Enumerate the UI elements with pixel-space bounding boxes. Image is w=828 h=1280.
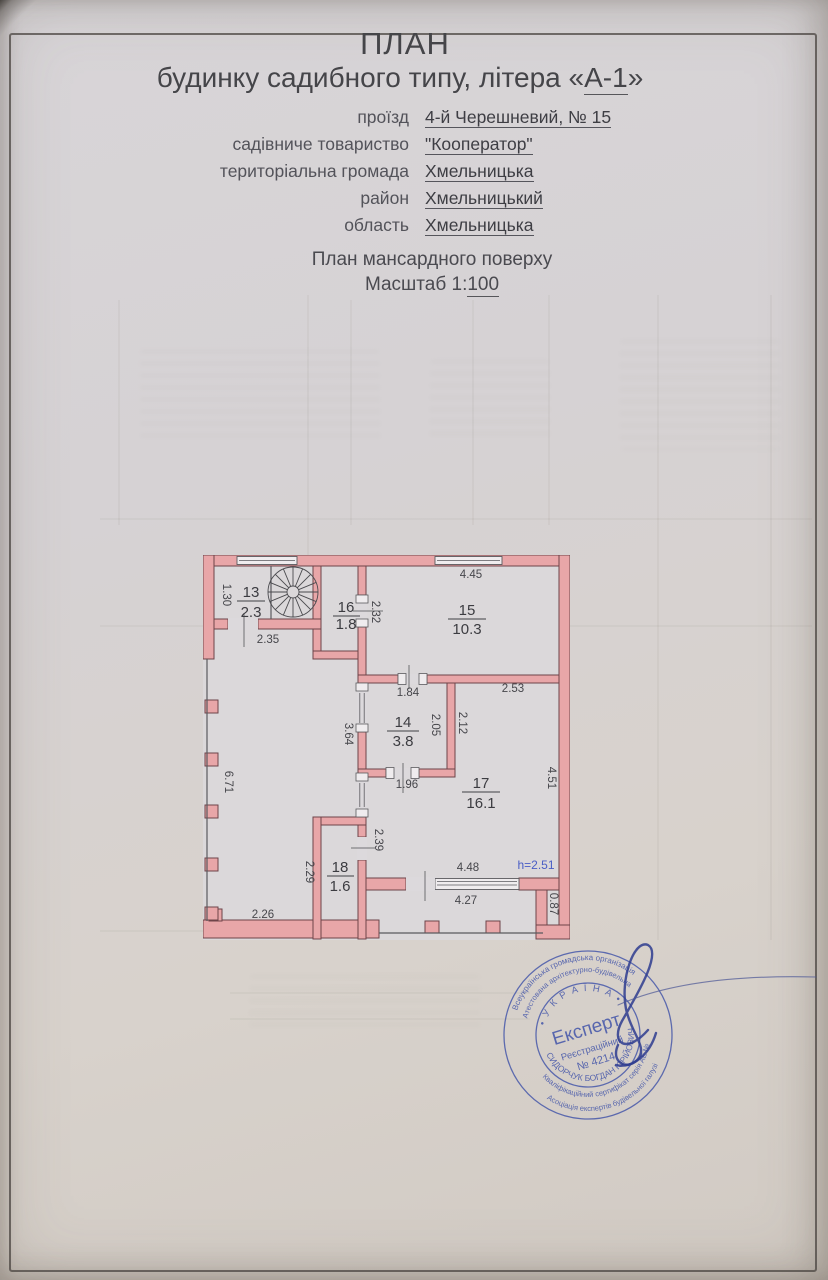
page-title: ПЛАН: [0, 26, 810, 62]
dim-room17-right: 4.51: [545, 767, 557, 789]
svg-text:2.3: 2.3: [241, 604, 262, 621]
address-value: Хмельницький: [409, 185, 704, 212]
svg-text:15: 15: [459, 602, 476, 619]
plan-caption: План мансардного поверху Масштаб 1:100: [52, 247, 812, 297]
address-row: проїзд 4-й Черешневий, № 15: [118, 104, 704, 131]
svg-text:18: 18: [332, 859, 349, 876]
dim-room18-left: 2.29: [303, 861, 315, 883]
dim-room14-inner-right: 2.05: [429, 714, 441, 736]
svg-text:10.3: 10.3: [452, 621, 481, 638]
dim-window-top: 4.48: [457, 862, 479, 874]
address-label: садівниче товариство: [118, 131, 409, 158]
svg-text:14: 14: [395, 714, 412, 731]
stamp-seal: Всеукраїнська громадська організація Ате…: [498, 935, 693, 1140]
dim-room13-left: 1.30: [220, 584, 232, 606]
dim-room14-top: 1.84: [397, 687, 420, 699]
dim-open-area-bottom: 2.26: [252, 909, 274, 921]
dim-open-area-left: 6.71: [222, 771, 234, 793]
dim-room17-left: 2.12: [456, 712, 468, 734]
dim-room13-bottom: 2.35: [257, 634, 279, 646]
address-value: 4-й Черешневий, № 15: [409, 104, 704, 131]
address-label: територіальна громада: [118, 158, 409, 185]
svg-text:1.8: 1.8: [336, 616, 357, 633]
dim-window-bottom: 4.27: [455, 895, 477, 907]
dim-mid-wall-left: 3.64: [342, 723, 354, 746]
dim-room18-right: 2.39: [372, 829, 384, 851]
svg-text:16: 16: [338, 599, 355, 616]
subtitle-closing: »: [628, 62, 644, 93]
floor-plan-svg: 13 2.3 14 3.8 15 10.3 16 1.8 17 16.1 18 …: [203, 555, 570, 945]
dim-room17-top: 2.53: [502, 683, 524, 695]
address-label: область: [118, 212, 409, 239]
plan-caption-line1: План мансардного поверху: [52, 247, 812, 272]
address-value: Хмельницька: [409, 158, 704, 185]
subtitle-text: будинку садибного типу, літера «: [157, 62, 584, 93]
dim-corner-right: 0.87: [547, 893, 559, 915]
floor-plan: 13 2.3 14 3.8 15 10.3 16 1.8 17 16.1 18 …: [203, 555, 570, 945]
svg-text:13: 13: [243, 584, 260, 601]
address-row: садівниче товариство "Кооператор": [118, 131, 704, 158]
scale-value: 100: [467, 274, 499, 297]
dim-room14-bottom: 1.96: [396, 779, 418, 791]
svg-text:1.6: 1.6: [330, 878, 351, 895]
svg-text:16.1: 16.1: [466, 795, 495, 812]
address-row: район Хмельницький: [118, 185, 704, 212]
dim-room15-top: 4.45: [460, 569, 482, 581]
stamp-svg: Всеукраїнська громадська організація Ате…: [498, 935, 828, 1145]
plan-caption-line2: Масштаб 1:100: [52, 272, 812, 297]
dim-room16-right: 2.32: [369, 601, 381, 623]
page-subtitle: будинку садибного типу, літера «А-1»: [0, 62, 800, 94]
address-label: проїзд: [118, 104, 409, 131]
address-block: проїзд 4-й Черешневий, № 15 садівниче то…: [118, 104, 704, 239]
address-label: район: [118, 185, 409, 212]
scanned-page: ПЛАН будинку садибного типу, літера «А-1…: [0, 0, 828, 1280]
ceiling-height-note: h=2.51: [517, 858, 554, 872]
address-row: територіальна громада Хмельницька: [118, 158, 704, 185]
building-letter: А-1: [584, 62, 628, 95]
expert-stamp: Всеукраїнська громадська організація Ате…: [498, 935, 828, 1145]
svg-text:17: 17: [473, 775, 490, 792]
address-value: Хмельницька: [409, 212, 704, 239]
svg-text:3.8: 3.8: [393, 733, 414, 750]
address-value: "Кооператор": [409, 131, 704, 158]
address-row: область Хмельницька: [118, 212, 704, 239]
